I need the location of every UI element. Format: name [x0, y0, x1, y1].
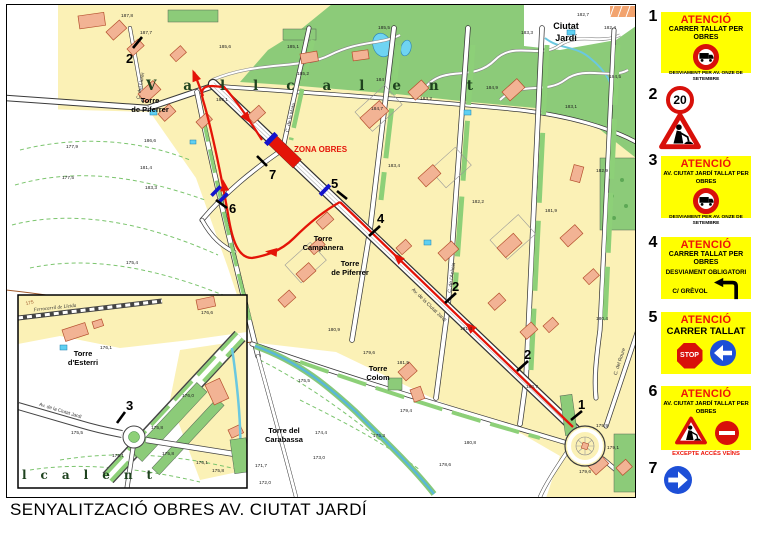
svg-text:178,6: 178,6 — [439, 462, 451, 468]
legend-number-5: 5 — [646, 309, 660, 327]
legend-sign-5: ATENCIÓ CARRER TALLAT STOP — [661, 312, 751, 374]
svg-text:177,5: 177,5 — [62, 175, 74, 181]
sign-footer: DESVIAMENT PER AV. ONZE DE SETEMBRE — [661, 215, 751, 227]
svg-text:179,6: 179,6 — [579, 469, 591, 475]
legend-sign-1: ATENCIÓ CARRER TALLAT PER OBRES DESVIAME… — [661, 12, 751, 73]
svg-text:183,2: 183,2 — [420, 96, 432, 102]
sign-footer: EXCEPTE ACCÉS VEÏNS — [661, 451, 751, 457]
map-marker-4: 4 — [377, 211, 385, 226]
map-marker-1: 1 — [578, 397, 585, 412]
roadworks-triangle-icon — [658, 112, 702, 155]
svg-text:de Piferrer: de Piferrer — [331, 268, 369, 277]
mandatory-left-icon — [710, 340, 736, 371]
svg-text:182,7: 182,7 — [577, 12, 589, 18]
speed-limit-20-sign: 20 — [666, 86, 694, 114]
roadworks-signage-plan: Ferrocarril de Lleida Av. de la Ciutat J… — [0, 0, 768, 543]
svg-text:185,5: 185,5 — [378, 25, 390, 31]
svg-text:175,8: 175,8 — [151, 425, 163, 431]
svg-text:176,1: 176,1 — [196, 460, 208, 466]
sign-title: ATENCIÓ — [661, 14, 751, 26]
sign-title: ATENCIÓ — [661, 314, 751, 326]
area-label-vallcalent: Vallcalent — [145, 78, 501, 94]
svg-text:de Piferrer: de Piferrer — [131, 105, 169, 114]
svg-text:182,2: 182,2 — [472, 199, 484, 205]
legend-sign-3: ATENCIÓ AV. CIUTAT JARDÍ TALLAT PER OBRE… — [661, 156, 751, 218]
legend-number-6: 6 — [646, 383, 660, 401]
svg-text:183,4: 183,4 — [388, 163, 400, 169]
sign-text: CARRER TALLAT PER OBRES — [661, 26, 751, 42]
inset-map: Ferrocarril de Lleida Av. de la Ciutat J… — [18, 295, 251, 488]
svg-text:Torre: Torre — [369, 364, 388, 373]
legend-number-7: 7 — [646, 460, 660, 478]
mandatory-right-icon — [664, 466, 692, 499]
sign-text: DESVIAMENT OBLIGATORI — [661, 269, 751, 276]
map-marker-2c: 2 — [524, 347, 531, 362]
sign-title: ATENCIÓ — [661, 158, 751, 170]
sign-footer: DESVIAMENT PER AV. ONZE DE SETEMBRE — [661, 71, 751, 83]
sign-text: C/ GRÈVOL — [672, 288, 707, 295]
svg-text:176,0: 176,0 — [182, 393, 194, 399]
svg-text:186,6: 186,6 — [144, 138, 156, 144]
svg-text:Jardí: Jardí — [555, 33, 577, 43]
svg-text:175,5: 175,5 — [298, 378, 310, 384]
sign-text: CARRER TALLAT PER OBRES — [661, 251, 751, 267]
svg-text:Torre: Torre — [341, 259, 360, 268]
svg-text:180,8: 180,8 — [464, 440, 476, 446]
svg-text:185,1: 185,1 — [287, 44, 299, 50]
svg-text:Carabassa: Carabassa — [265, 435, 304, 444]
no-trucks-icon — [693, 188, 719, 214]
svg-text:177,9: 177,9 — [66, 144, 78, 150]
page-title: SENYALITZACIÓ OBRES AV. CIUTAT JARDÍ — [10, 500, 367, 520]
roundabout — [565, 426, 605, 466]
map-marker-7: 7 — [269, 167, 276, 182]
svg-text:175,8: 175,8 — [212, 468, 224, 474]
svg-text:Torre del: Torre del — [268, 426, 300, 435]
works-zone-label: ZONA OBRES — [294, 145, 348, 154]
svg-text:172,0: 172,0 — [259, 480, 271, 486]
legend-number-2: 2 — [646, 86, 660, 104]
svg-text:181,4: 181,4 — [140, 165, 152, 171]
svg-text:Campanera: Campanera — [303, 243, 345, 252]
svg-text:176,1: 176,1 — [100, 345, 112, 351]
svg-text:180,4: 180,4 — [596, 316, 608, 322]
legend-number-4: 4 — [646, 234, 660, 252]
area-label-ciutat-jardi: Ciutat — [553, 21, 579, 31]
svg-text:180,7: 180,7 — [526, 384, 538, 390]
svg-text:185,2: 185,2 — [297, 71, 309, 77]
map-canvas: Ferrocarril de Lleida Av. de la Ciutat J… — [6, 4, 638, 498]
svg-text:181,5: 181,5 — [397, 360, 409, 366]
svg-text:175,4: 175,4 — [126, 260, 138, 266]
svg-text:181,9: 181,9 — [545, 208, 557, 214]
svg-text:183,3: 183,3 — [521, 30, 533, 36]
svg-text:179,9: 179,9 — [596, 423, 608, 429]
svg-text:182,9: 182,9 — [596, 168, 608, 174]
svg-text:186,1: 186,1 — [216, 97, 228, 103]
svg-text:184,9: 184,9 — [486, 85, 498, 91]
svg-text:d'Esterri: d'Esterri — [68, 358, 98, 367]
svg-text:174,4: 174,4 — [315, 430, 327, 436]
map-marker-3: 3 — [126, 398, 133, 413]
map-marker-6: 6 — [229, 201, 236, 216]
svg-text:185,6: 185,6 — [219, 44, 231, 50]
roadworks-triangle-icon — [674, 416, 708, 450]
sign-title: ATENCIÓ — [661, 239, 751, 251]
svg-text:184: 184 — [376, 77, 384, 83]
no-entry-icon — [715, 421, 739, 445]
legend-number-1: 1 — [646, 8, 660, 26]
svg-text:187,8: 187,8 — [121, 13, 133, 19]
svg-text:175,8: 175,8 — [162, 451, 174, 457]
svg-text:184,5: 184,5 — [609, 74, 621, 80]
svg-text:183,3: 183,3 — [145, 185, 157, 191]
svg-text:179,4: 179,4 — [400, 408, 412, 414]
svg-text:180,9: 180,9 — [328, 327, 340, 333]
svg-text:171,7: 171,7 — [255, 463, 267, 469]
no-trucks-icon — [693, 44, 719, 70]
svg-text:181,4: 181,4 — [460, 326, 472, 332]
svg-text:182,4: 182,4 — [604, 25, 616, 31]
svg-text:187,7: 187,7 — [140, 30, 152, 36]
legend-sign-6: ATENCIÓ AV. CIUTAT JARDÍ TALLAT PER OBRE… — [661, 386, 751, 450]
svg-text:176,6: 176,6 — [201, 310, 213, 316]
map-marker-2a: 2 — [126, 51, 133, 66]
sign-title: ATENCIÓ — [661, 388, 751, 400]
svg-text:Torre: Torre — [141, 96, 160, 105]
map-marker-5: 5 — [331, 176, 338, 191]
svg-text:179,1: 179,1 — [607, 445, 619, 451]
place-label-torre-esterri: Torre — [74, 349, 93, 358]
svg-text:Torre: Torre — [314, 234, 333, 243]
svg-text:184,7: 184,7 — [371, 106, 383, 112]
sign-text: CARRER TALLAT — [661, 326, 751, 337]
svg-text:Colom: Colom — [366, 373, 390, 382]
svg-text:175,1: 175,1 — [112, 453, 124, 459]
svg-text:173,0: 173,0 — [313, 455, 325, 461]
sign-text: AV. CIUTAT JARDÍ TALLAT PER OBRES — [661, 400, 751, 416]
svg-text:175,5: 175,5 — [71, 430, 83, 436]
sign-text: AV. CIUTAT JARDÍ TALLAT PER OBRES — [661, 170, 751, 186]
area-label-vallcalent-inset: lcalent — [22, 468, 166, 482]
svg-text:183,1: 183,1 — [565, 104, 577, 110]
svg-text:175,3: 175,3 — [373, 433, 385, 439]
stop-sign-icon: STOP — [677, 343, 703, 369]
svg-text:179,6: 179,6 — [363, 350, 375, 356]
legend-sign-4: ATENCIÓ CARRER TALLAT PER OBRES DESVIAME… — [661, 237, 751, 299]
turn-left-arrow-icon — [712, 277, 740, 306]
